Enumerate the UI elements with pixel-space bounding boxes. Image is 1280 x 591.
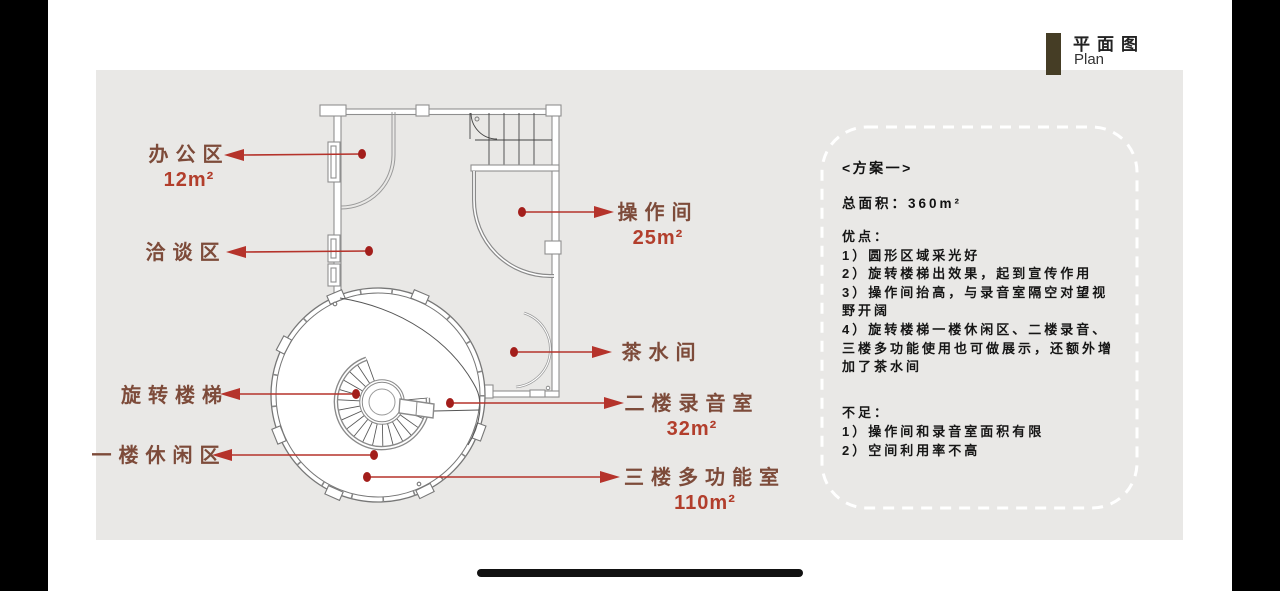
scheme-cons: 不足： 1）操作间和录音室面积有限 2）空间利用率不高 <box>842 403 1114 460</box>
letterbox-left <box>0 0 48 591</box>
pros-item: 2）旋转楼梯出效果，起到宣传作用 <box>842 265 1114 284</box>
cons-heading: 不足： <box>842 403 1114 422</box>
operation-room-wall <box>471 165 559 276</box>
tea-room-arc <box>516 313 550 387</box>
label-office-name: 办公区 <box>104 143 274 167</box>
label-operation-name: 操作间 <box>573 201 743 225</box>
label-recording: 二楼录音室 32m² <box>607 392 777 441</box>
pros-item: 1）圆形区域采光好 <box>842 247 1114 266</box>
label-multifunction-name: 三楼多功能室 <box>610 466 800 490</box>
label-operation-area: 25m² <box>573 226 743 250</box>
home-indicator[interactable] <box>477 569 803 577</box>
label-office-area: 12m² <box>104 168 274 192</box>
label-spiral: 旋转楼梯 <box>90 384 260 408</box>
stairwell <box>470 113 552 165</box>
app-frame: 平面图 Plan <box>0 0 1280 591</box>
pros-item: 4）旋转楼梯一楼休闲区、二楼录音、三楼多功能使用也可做展示，还额外增加了茶水间 <box>842 321 1114 377</box>
label-multifunction: 三楼多功能室 110m² <box>610 466 800 515</box>
scheme-total-area: 总面积：360m² <box>842 192 962 212</box>
label-tea-name: 茶水间 <box>577 341 747 365</box>
letterbox-right <box>1232 0 1280 591</box>
label-tea: 茶水间 <box>577 341 747 365</box>
label-recording-name: 二楼录音室 <box>607 392 777 416</box>
pros-heading: 优点： <box>842 228 1114 247</box>
label-spiral-name: 旋转楼梯 <box>90 384 260 408</box>
circle-hall <box>271 288 485 502</box>
label-leisure: 一楼休闲区 <box>74 444 244 468</box>
label-negotiation: 洽谈区 <box>101 241 271 265</box>
cons-item: 2）空间利用率不高 <box>842 441 1114 460</box>
scheme-title: <方案一> <box>842 158 913 178</box>
pros-item: 3）操作间抬高，与录音室隔空对望视野开阔 <box>842 284 1114 321</box>
scheme-pros: 优点： 1）圆形区域采光好 2）旋转楼梯出效果，起到宣传作用 3）操作间抬高，与… <box>842 228 1114 377</box>
label-negotiation-name: 洽谈区 <box>101 241 271 265</box>
label-office: 办公区 12m² <box>104 143 274 192</box>
label-leisure-name: 一楼休闲区 <box>74 444 244 468</box>
label-recording-area: 32m² <box>607 417 777 441</box>
cons-item: 1）操作间和录音室面积有限 <box>842 422 1114 441</box>
office-partition-arc <box>341 112 395 209</box>
label-operation: 操作间 25m² <box>573 201 743 250</box>
label-multifunction-area: 110m² <box>610 491 800 515</box>
